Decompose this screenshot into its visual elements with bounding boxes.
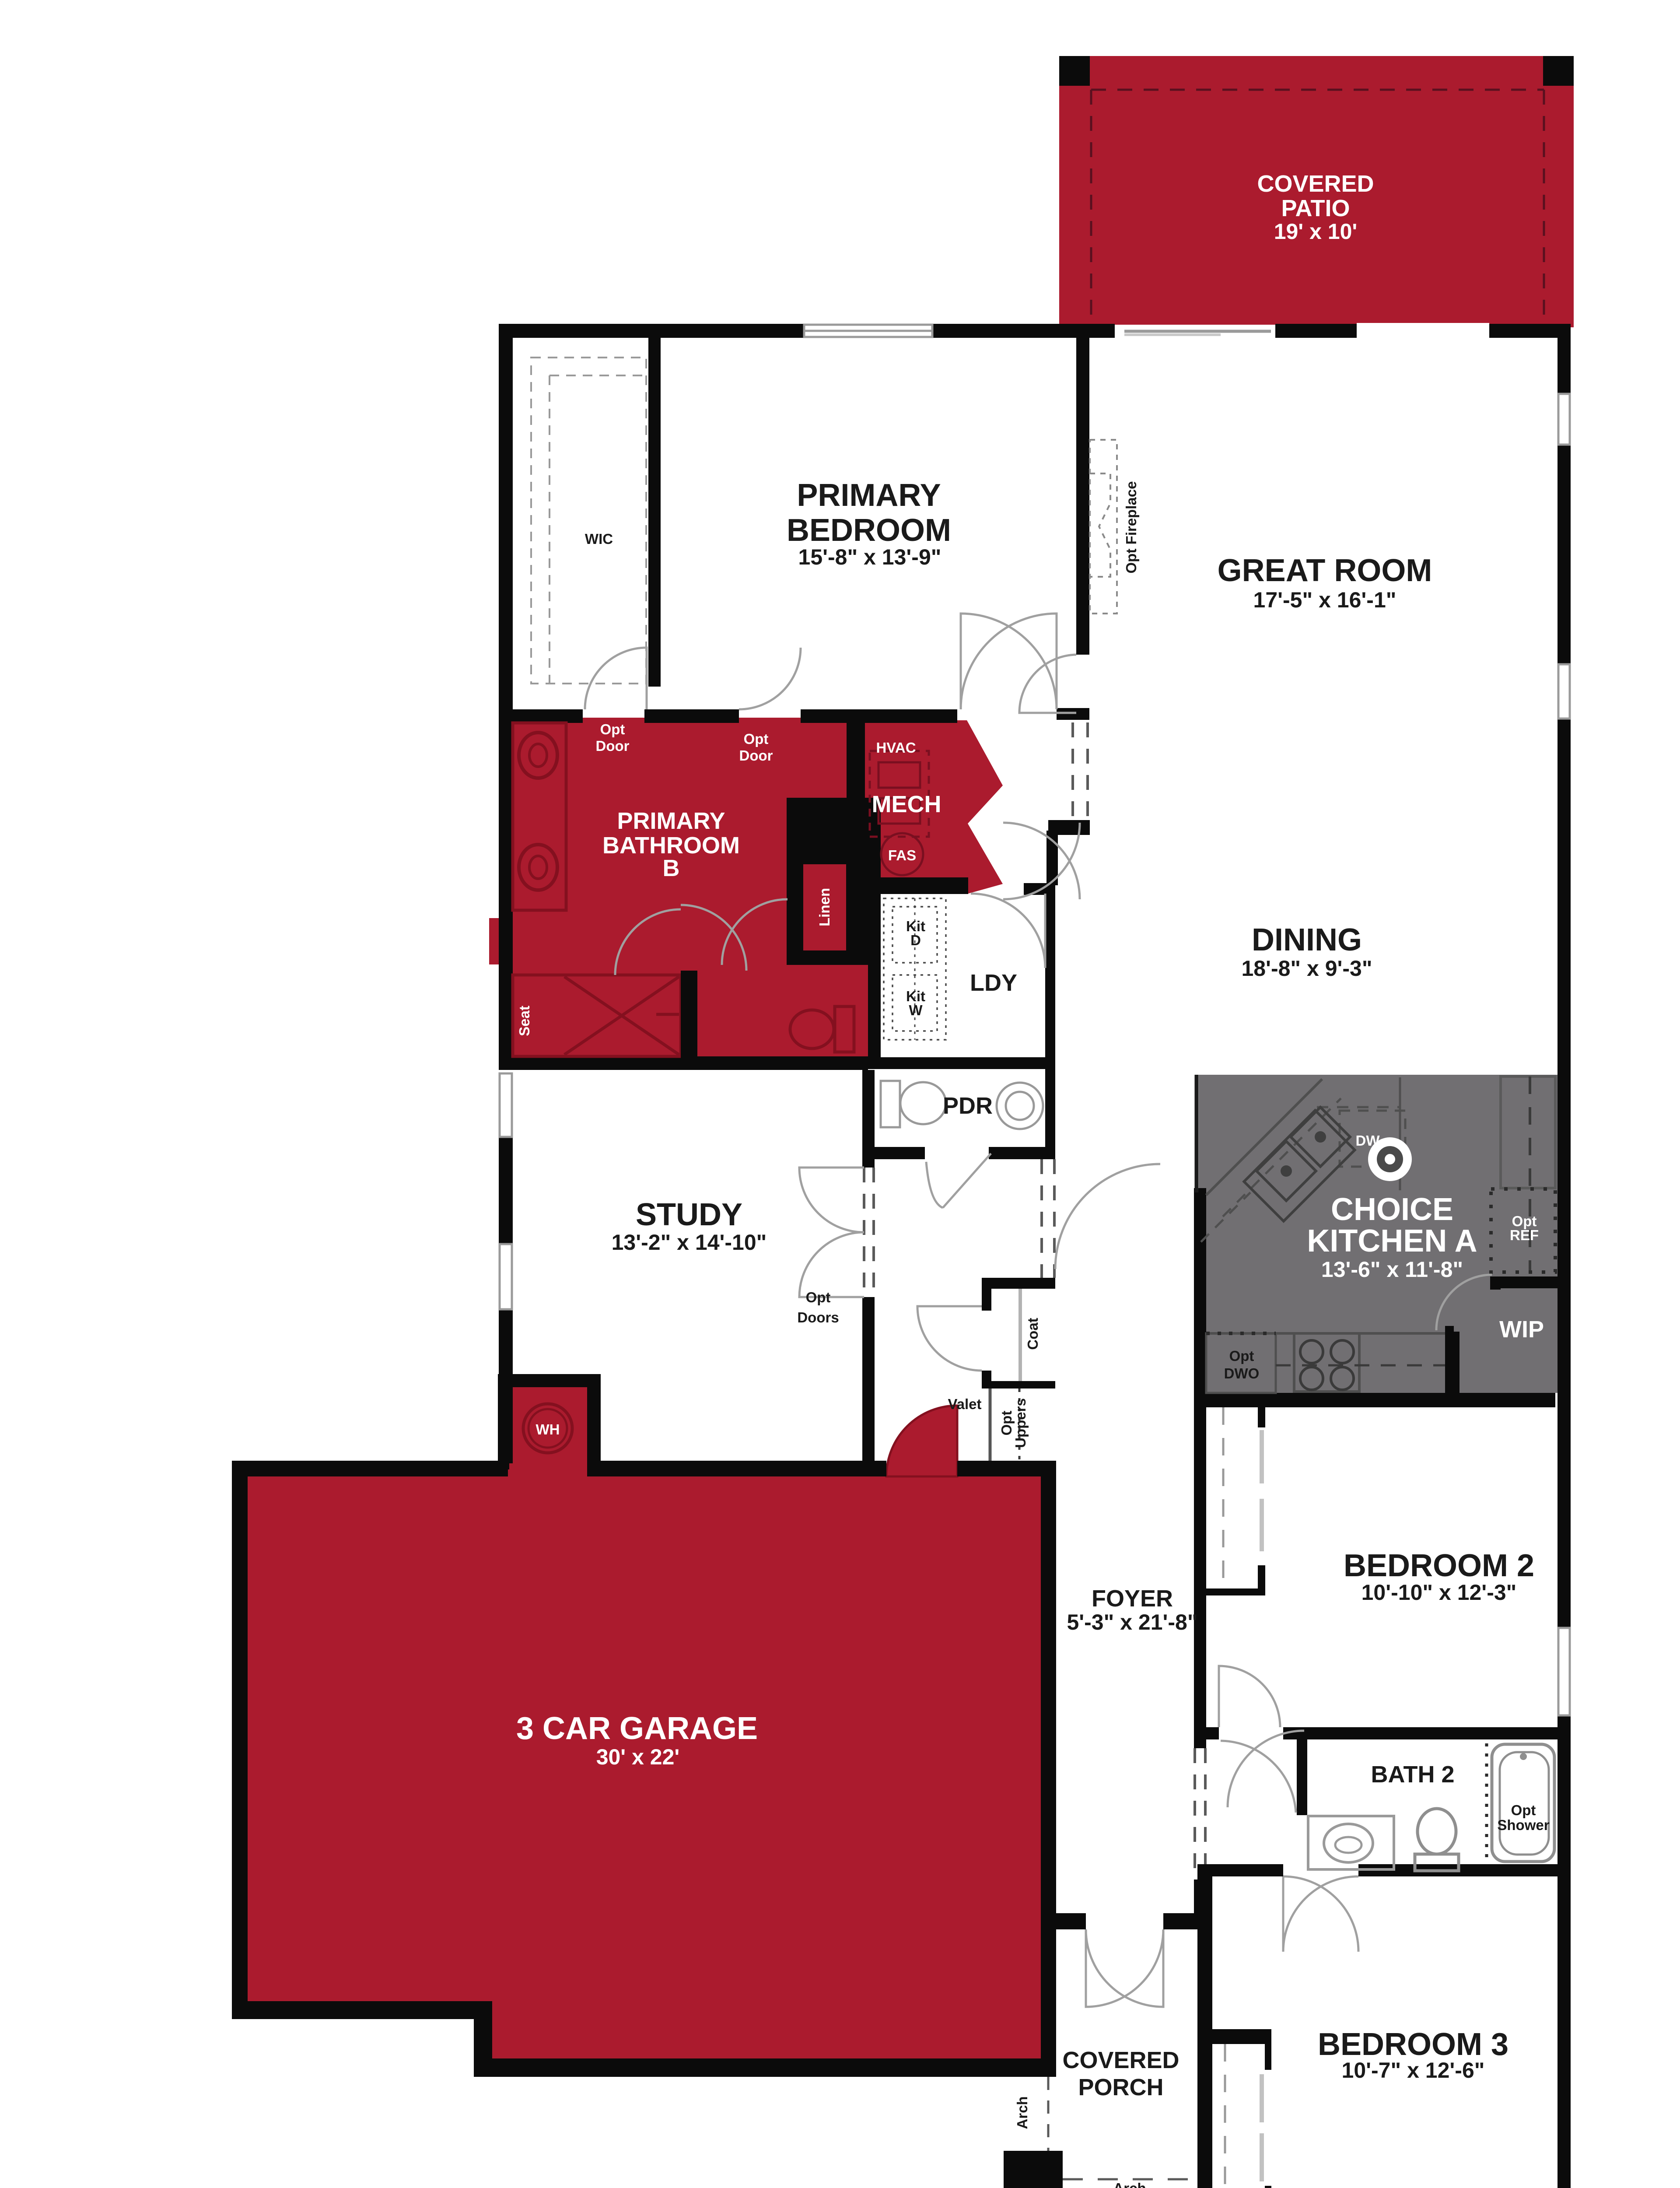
svg-text:Arch: Arch — [1113, 2180, 1146, 2188]
svg-text:13'-6" x 11'-8": 13'-6" x 11'-8" — [1321, 1257, 1463, 1282]
svg-text:LDY: LDY — [970, 970, 1017, 996]
svg-text:PRIMARY: PRIMARY — [797, 478, 941, 513]
svg-text:Coat: Coat — [1025, 1318, 1041, 1350]
svg-text:3 CAR GARAGE: 3 CAR GARAGE — [516, 1711, 758, 1746]
svg-text:DWO: DWO — [1224, 1365, 1260, 1382]
svg-text:Opt: Opt — [744, 731, 769, 747]
svg-text:PDR: PDR — [943, 1093, 993, 1119]
svg-text:W: W — [909, 1002, 923, 1018]
svg-text:BEDROOM 2: BEDROOM 2 — [1344, 1548, 1534, 1583]
svg-text:Opt: Opt — [1229, 1348, 1254, 1364]
svg-text:Doors: Doors — [797, 1309, 839, 1325]
svg-text:GREAT ROOM: GREAT ROOM — [1218, 553, 1432, 588]
svg-text:Arch: Arch — [1014, 2096, 1030, 2129]
svg-text:B: B — [663, 855, 680, 881]
svg-text:5'-3" x 21'-8": 5'-3" x 21'-8" — [1067, 1610, 1197, 1634]
svg-text:Opt: Opt — [1511, 1802, 1536, 1818]
svg-text:15'-8" x 13'-9": 15'-8" x 13'-9" — [798, 545, 941, 569]
svg-text:FOYER: FOYER — [1092, 1585, 1173, 1612]
svg-text:WH: WH — [536, 1421, 560, 1438]
svg-text:COVERED: COVERED — [1257, 171, 1374, 197]
svg-text:Opt: Opt — [600, 721, 625, 737]
svg-text:10'-7" x 12'-6": 10'-7" x 12'-6" — [1342, 2058, 1485, 2083]
svg-text:FAS: FAS — [888, 847, 916, 863]
svg-text:WIP: WIP — [1499, 1316, 1544, 1343]
svg-text:PATIO: PATIO — [1281, 195, 1350, 221]
svg-text:COVERED: COVERED — [1062, 2047, 1179, 2073]
svg-text:Shower: Shower — [1497, 1817, 1549, 1833]
svg-text:19' x 10': 19' x 10' — [1274, 219, 1358, 244]
svg-text:Opt: Opt — [806, 1289, 831, 1305]
svg-text:WIC: WIC — [585, 531, 613, 547]
svg-text:Uppers: Uppers — [1012, 1398, 1029, 1448]
svg-text:CHOICE: CHOICE — [1331, 1192, 1453, 1227]
svg-text:17'-5" x 16'-1": 17'-5" x 16'-1" — [1253, 588, 1396, 612]
svg-text:Linen: Linen — [816, 888, 833, 926]
svg-text:D: D — [910, 932, 921, 948]
svg-text:18'-8" x 9'-3": 18'-8" x 9'-3" — [1241, 956, 1372, 981]
svg-text:HVAC: HVAC — [876, 740, 916, 756]
svg-text:DW: DW — [1356, 1133, 1380, 1149]
svg-text:MECH: MECH — [872, 791, 941, 817]
svg-text:PRIMARY: PRIMARY — [617, 808, 725, 834]
svg-text:13'-2" x 14'-10": 13'-2" x 14'-10" — [612, 1230, 767, 1255]
svg-text:Seat: Seat — [516, 1006, 532, 1036]
svg-text:KITCHEN A: KITCHEN A — [1307, 1224, 1477, 1259]
svg-text:BATH 2: BATH 2 — [1371, 1761, 1454, 1788]
svg-text:DINING: DINING — [1252, 922, 1362, 957]
svg-text:Door: Door — [596, 738, 630, 754]
svg-text:STUDY: STUDY — [636, 1197, 742, 1232]
svg-text:PORCH: PORCH — [1078, 2074, 1163, 2100]
svg-text:BEDROOM: BEDROOM — [787, 513, 951, 548]
svg-text:Door: Door — [739, 747, 773, 764]
svg-text:BEDROOM 3: BEDROOM 3 — [1318, 2027, 1508, 2062]
svg-text:REF: REF — [1510, 1227, 1539, 1243]
svg-text:Opt Fireplace: Opt Fireplace — [1123, 481, 1139, 574]
svg-text:30' x 22': 30' x 22' — [596, 1745, 680, 1769]
svg-text:Valet: Valet — [948, 1396, 981, 1412]
svg-text:BATHROOM: BATHROOM — [602, 832, 740, 859]
svg-text:10'-10" x 12'-3": 10'-10" x 12'-3" — [1361, 1580, 1517, 1605]
